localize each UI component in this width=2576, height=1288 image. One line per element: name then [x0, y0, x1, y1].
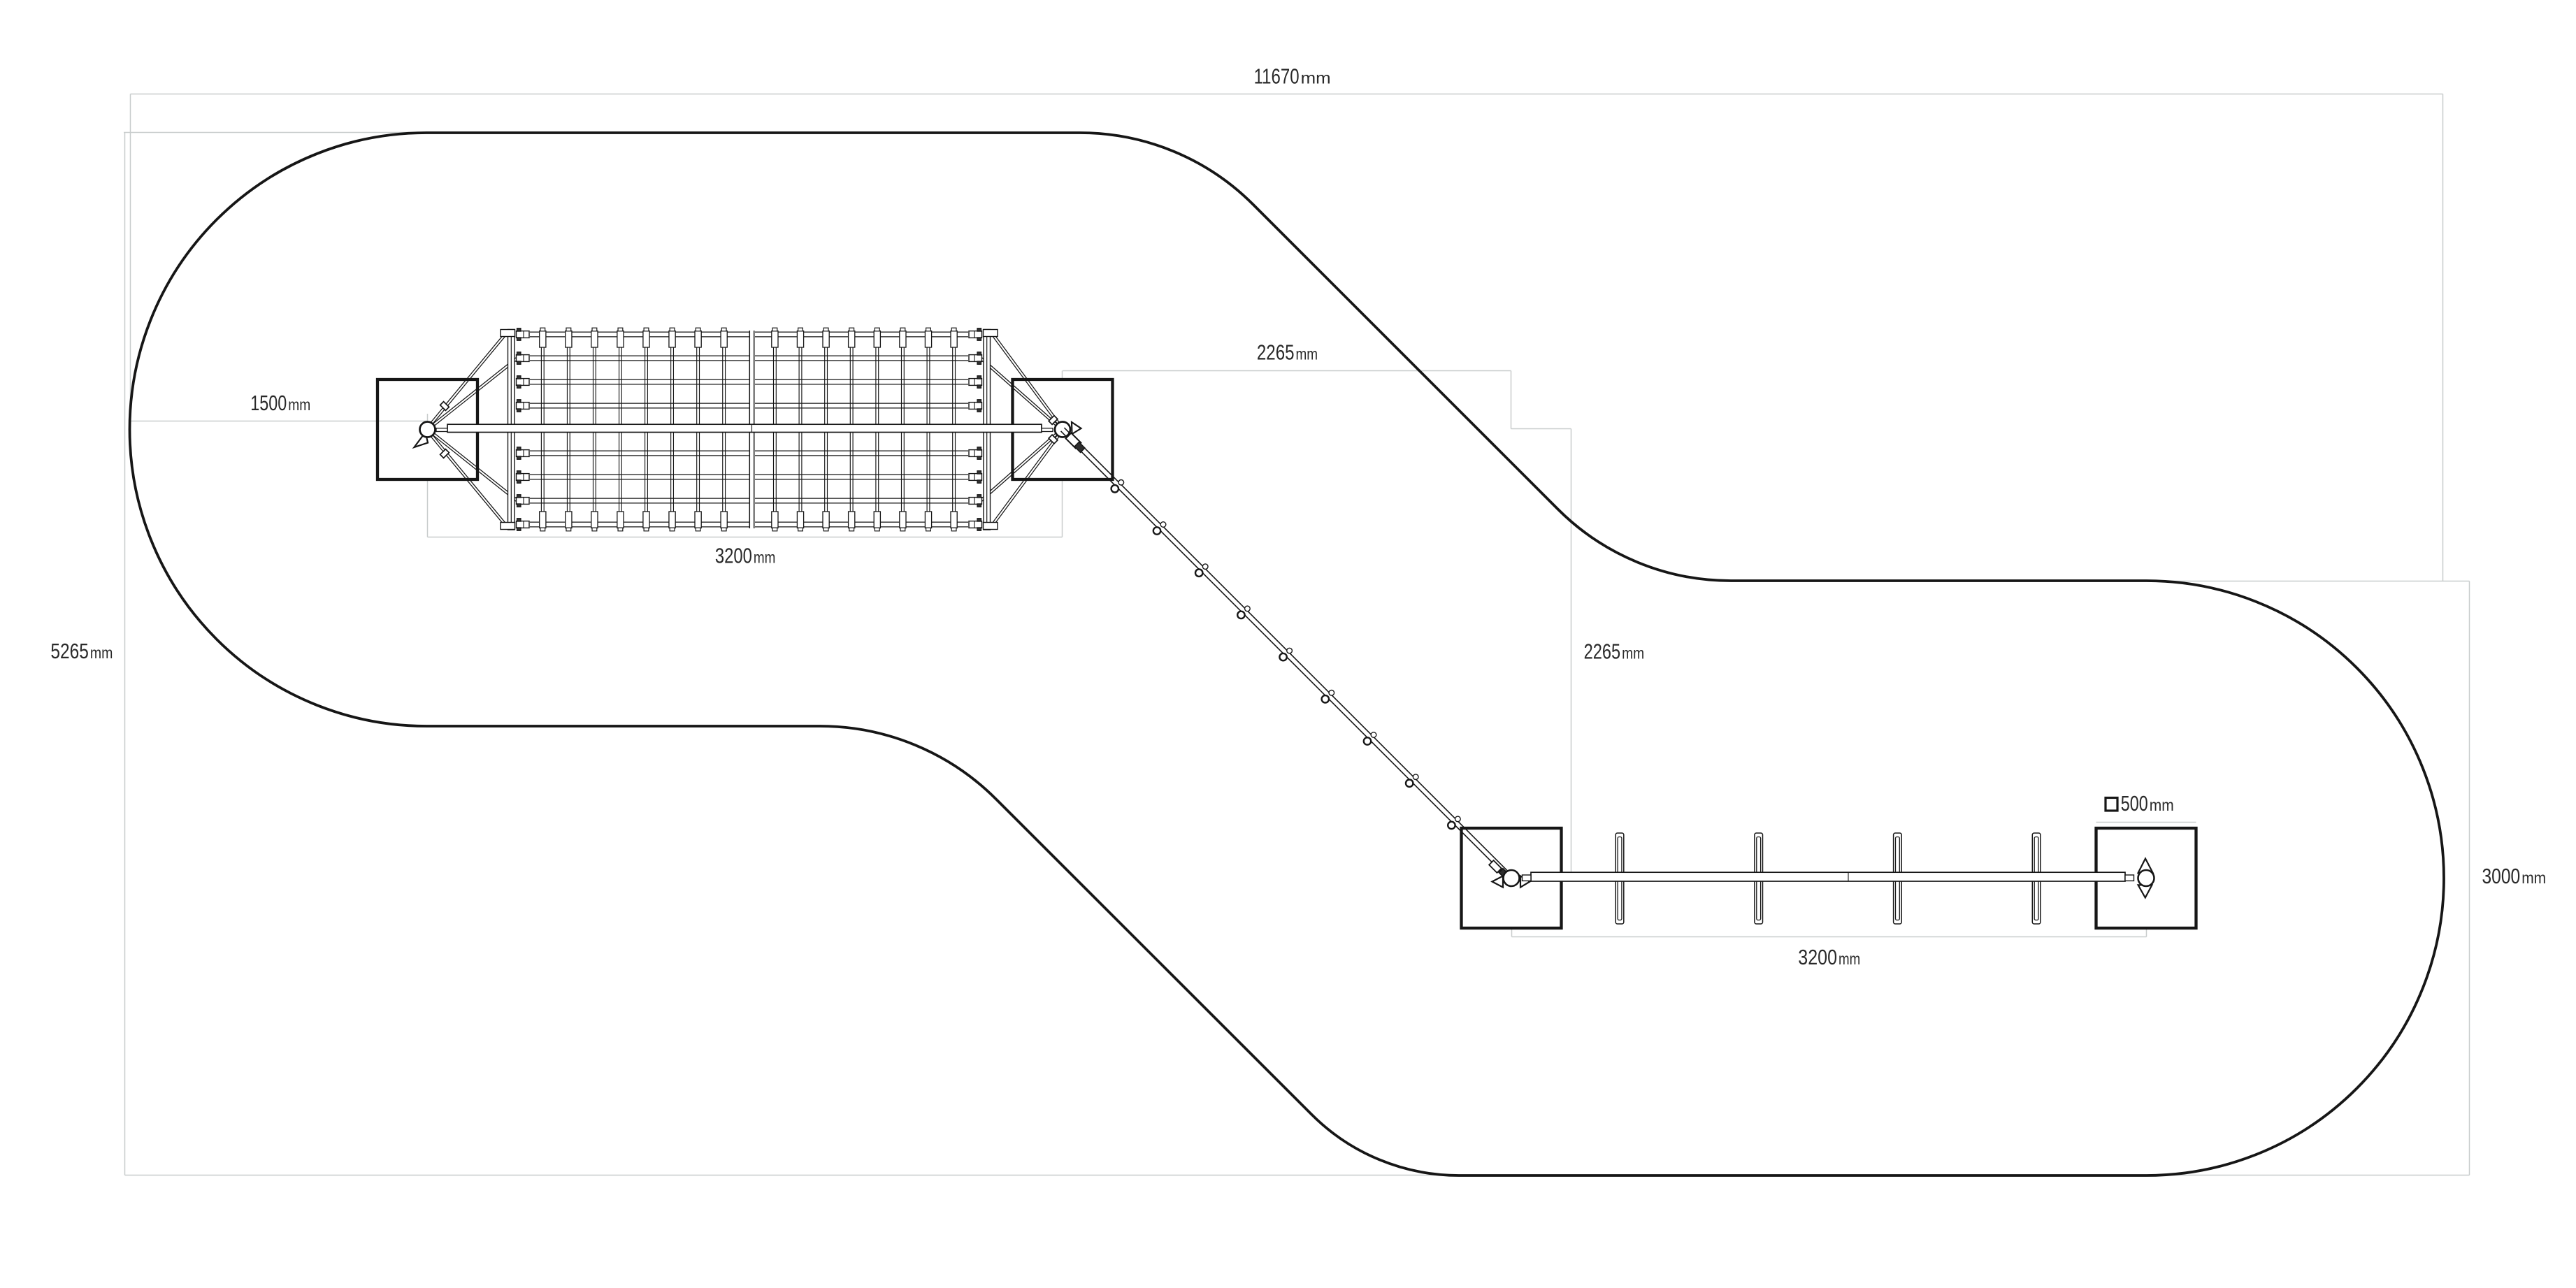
- svg-text:500: 500: [2121, 791, 2148, 816]
- svg-text:mm: mm: [1839, 950, 1860, 968]
- svg-text:mm: mm: [1296, 345, 1318, 363]
- svg-text:mm: mm: [754, 549, 776, 567]
- svg-text:11670: 11670: [1254, 64, 1300, 89]
- svg-text:mm: mm: [1301, 69, 1331, 87]
- svg-text:mm: mm: [2150, 796, 2174, 814]
- svg-text:5265: 5265: [50, 639, 88, 663]
- svg-text:mm: mm: [288, 396, 310, 414]
- svg-text:mm: mm: [2521, 869, 2546, 887]
- svg-text:mm: mm: [1622, 644, 1644, 663]
- svg-text:3200: 3200: [715, 544, 752, 568]
- svg-text:mm: mm: [90, 644, 113, 662]
- svg-text:2265: 2265: [1584, 639, 1621, 664]
- svg-text:1500: 1500: [250, 391, 287, 415]
- svg-text:3200: 3200: [1798, 945, 1837, 969]
- svg-text:3000: 3000: [2482, 864, 2521, 888]
- svg-text:2265: 2265: [1257, 340, 1295, 365]
